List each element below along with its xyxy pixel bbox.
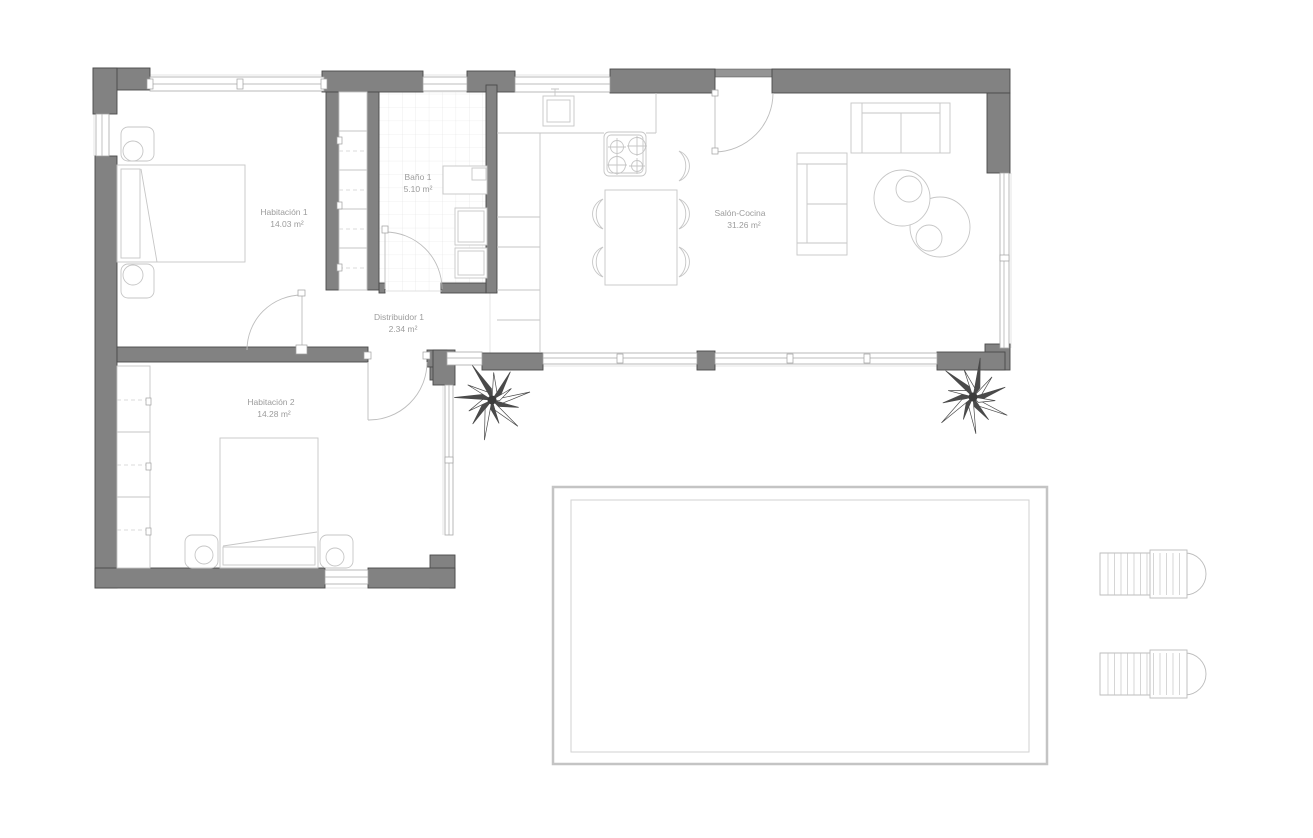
- window-bedroom1-top: [147, 77, 327, 91]
- room-label-habitacion2-name: Habitación 2: [247, 397, 295, 407]
- bathroom-vanity: [443, 166, 487, 194]
- room-label-habitacion1-area: 14.03 m²: [270, 219, 304, 229]
- window-bathroom-top: [423, 77, 467, 91]
- room-label-bano1-name: Baño 1: [405, 172, 432, 182]
- room-label-habitacion2-area: 14.28 m²: [257, 409, 291, 419]
- furniture-bedroom2: [117, 366, 353, 568]
- nightstand: [185, 535, 218, 568]
- floor-plan-drawing: Habitación 1 14.03 m² Baño 1 5.10 m² Sal…: [0, 0, 1313, 838]
- furniture-living: [797, 103, 970, 257]
- room-label-distribuidor-name: Distribuidor 1: [374, 312, 424, 322]
- nightstand: [320, 535, 353, 568]
- room-label-bano1-area: 5.10 m²: [404, 184, 433, 194]
- sun-lounger-icon: [1100, 650, 1206, 698]
- entry-glazed-door: [447, 352, 482, 365]
- sun-loungers: [1100, 550, 1206, 698]
- plant-icon: [454, 362, 530, 440]
- window-bedroom1-left: [96, 114, 109, 156]
- window-living-bottom-right: [715, 353, 937, 364]
- room-label-distribuidor-area: 2.34 m²: [389, 324, 418, 334]
- window-bedroom2-right: [445, 385, 453, 535]
- nightstand: [121, 264, 154, 298]
- room-label-habitacion1-name: Habitación 1: [260, 207, 308, 217]
- room-label-salon-name: Salón-Cocina: [714, 208, 765, 218]
- sofa-left: [797, 153, 847, 255]
- wardrobe-bedroom2: [117, 366, 151, 568]
- room-label-salon-area: 31.26 m²: [727, 220, 761, 230]
- bed-bedroom1: [117, 165, 245, 262]
- nightstand: [121, 127, 154, 161]
- window-bedroom2-bottom: [325, 570, 368, 584]
- door-bedroom1: [247, 290, 307, 354]
- floor-plan-canvas: Habitación 1 14.03 m² Baño 1 5.10 m² Sal…: [0, 0, 1313, 838]
- window-kitchen-top: [515, 77, 610, 92]
- door-terrace: [712, 90, 773, 154]
- window-living-right: [1000, 173, 1009, 348]
- bathroom-fixture: [455, 248, 487, 278]
- dining-table: [605, 190, 677, 285]
- sofa-top: [851, 103, 950, 153]
- window-living-bottom-left: [543, 353, 697, 364]
- kitchen-sink: [543, 89, 574, 126]
- pool: [553, 487, 1047, 764]
- sun-lounger-icon: [1100, 550, 1206, 598]
- bed-bedroom2: [220, 438, 318, 568]
- furniture-kitchen: [497, 89, 689, 352]
- stove: [604, 132, 647, 176]
- bathroom-fixture: [455, 208, 487, 245]
- wardrobe-bedroom1: [337, 92, 367, 290]
- door-bedroom2: [364, 352, 430, 420]
- armchair: [874, 170, 930, 226]
